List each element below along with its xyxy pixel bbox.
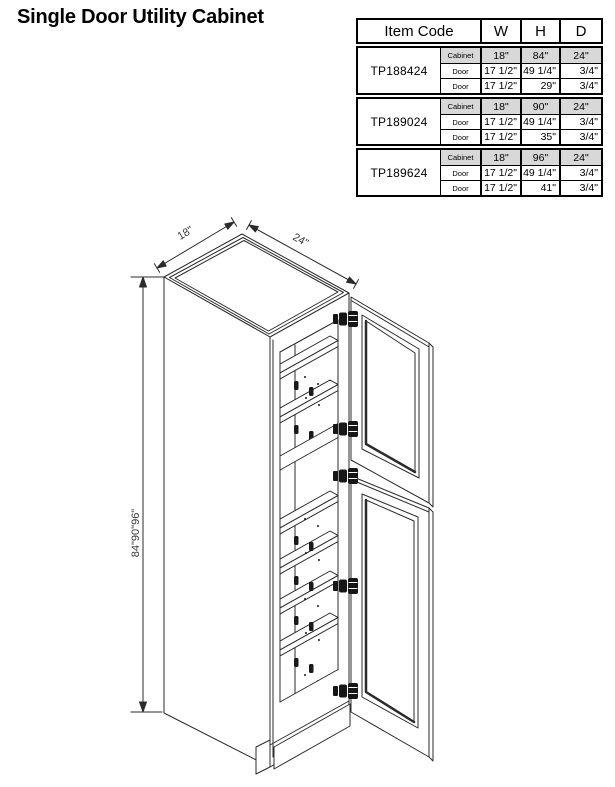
part-label: Door: [440, 180, 480, 195]
dim-value: 18": [480, 99, 520, 114]
height-dimension-label: 84"90"96": [130, 509, 142, 558]
item-code: TP189024: [358, 99, 440, 144]
dim-value: 41": [520, 180, 559, 195]
spec-group-tp189024: TP189024 Cabinet 18" 90" 24" Door 17 1/2…: [356, 97, 603, 146]
part-label: Cabinet: [440, 99, 480, 114]
dim-value: 17 1/2": [480, 114, 520, 129]
width-dimension-label: 18": [175, 224, 195, 243]
dim-value: 24": [559, 150, 601, 165]
dim-value: 49 1/4": [520, 63, 559, 78]
dim-value: 18": [480, 150, 520, 165]
part-label: Door: [440, 114, 480, 129]
dim-value: 3/4": [559, 180, 601, 195]
lower-door: [351, 476, 433, 761]
col-header-height: H: [520, 20, 559, 42]
dim-value: 49 1/4": [520, 114, 559, 129]
upper-door: [351, 297, 433, 507]
dim-value: 24": [559, 48, 601, 63]
dim-value: 29": [520, 78, 559, 93]
part-label: Door: [440, 129, 480, 144]
col-header-width: W: [480, 20, 520, 42]
dim-value: 49 1/4": [520, 165, 559, 180]
dim-value: 35": [520, 129, 559, 144]
spec-group-tp188424: TP188424 Cabinet 18" 84" 24" Door 17 1/2…: [356, 46, 603, 95]
dim-value: 96": [520, 150, 559, 165]
dim-value: 17 1/2": [480, 129, 520, 144]
part-label: Door: [440, 63, 480, 78]
dim-value: 3/4": [559, 78, 601, 93]
part-label: Cabinet: [440, 150, 480, 165]
spec-table-header: Item Code W H D: [356, 18, 603, 44]
dim-value: 17 1/2": [480, 165, 520, 180]
dim-value: 17 1/2": [480, 63, 520, 78]
dim-value: 3/4": [559, 129, 601, 144]
dim-value: 17 1/2": [480, 180, 520, 195]
col-header-item-code: Item Code: [358, 20, 480, 42]
item-code: TP189624: [358, 150, 440, 195]
part-label: Door: [440, 78, 480, 93]
spec-group-tp189624: TP189624 Cabinet 18" 96" 24" Door 17 1/2…: [356, 148, 603, 197]
dim-value: 84": [520, 48, 559, 63]
dim-value: 3/4": [559, 114, 601, 129]
dim-value: 90": [520, 99, 559, 114]
part-label: Cabinet: [440, 48, 480, 63]
dim-value: 3/4": [559, 63, 601, 78]
height-dimension: [131, 277, 164, 712]
part-label: Door: [440, 165, 480, 180]
item-code: TP188424: [358, 48, 440, 93]
dim-value: 24": [559, 99, 601, 114]
dim-value: 18": [480, 48, 520, 63]
depth-dimension-label: 24": [290, 231, 310, 249]
dim-value: 3/4": [559, 165, 601, 180]
col-header-depth: D: [559, 20, 601, 42]
cabinet-side-panel: [164, 277, 270, 767]
dim-value: 17 1/2": [480, 78, 520, 93]
